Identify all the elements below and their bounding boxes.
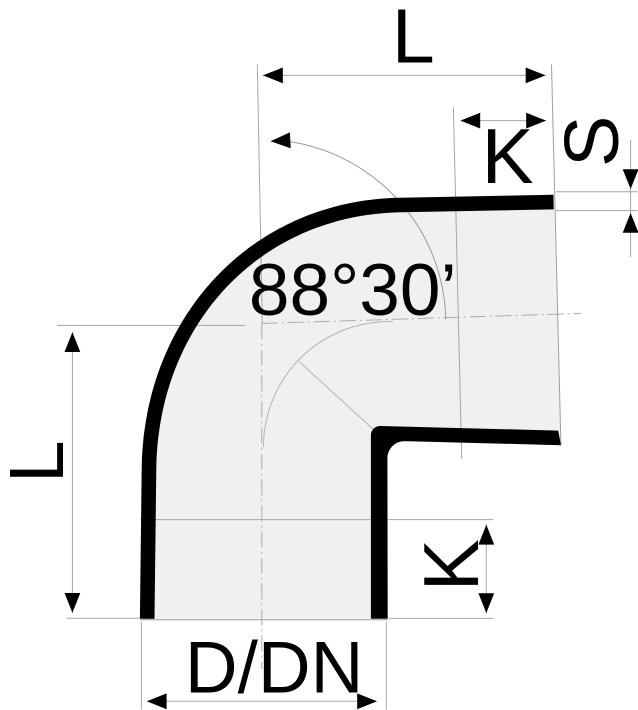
svg-text:D/DN: D/DN xyxy=(185,627,363,708)
svg-text:L: L xyxy=(0,440,80,483)
svg-text:K: K xyxy=(407,539,495,591)
svg-text:K: K xyxy=(482,112,534,200)
svg-text:S: S xyxy=(549,116,635,167)
svg-text:L: L xyxy=(392,0,435,80)
svg-text:88°30’: 88°30’ xyxy=(249,250,457,331)
